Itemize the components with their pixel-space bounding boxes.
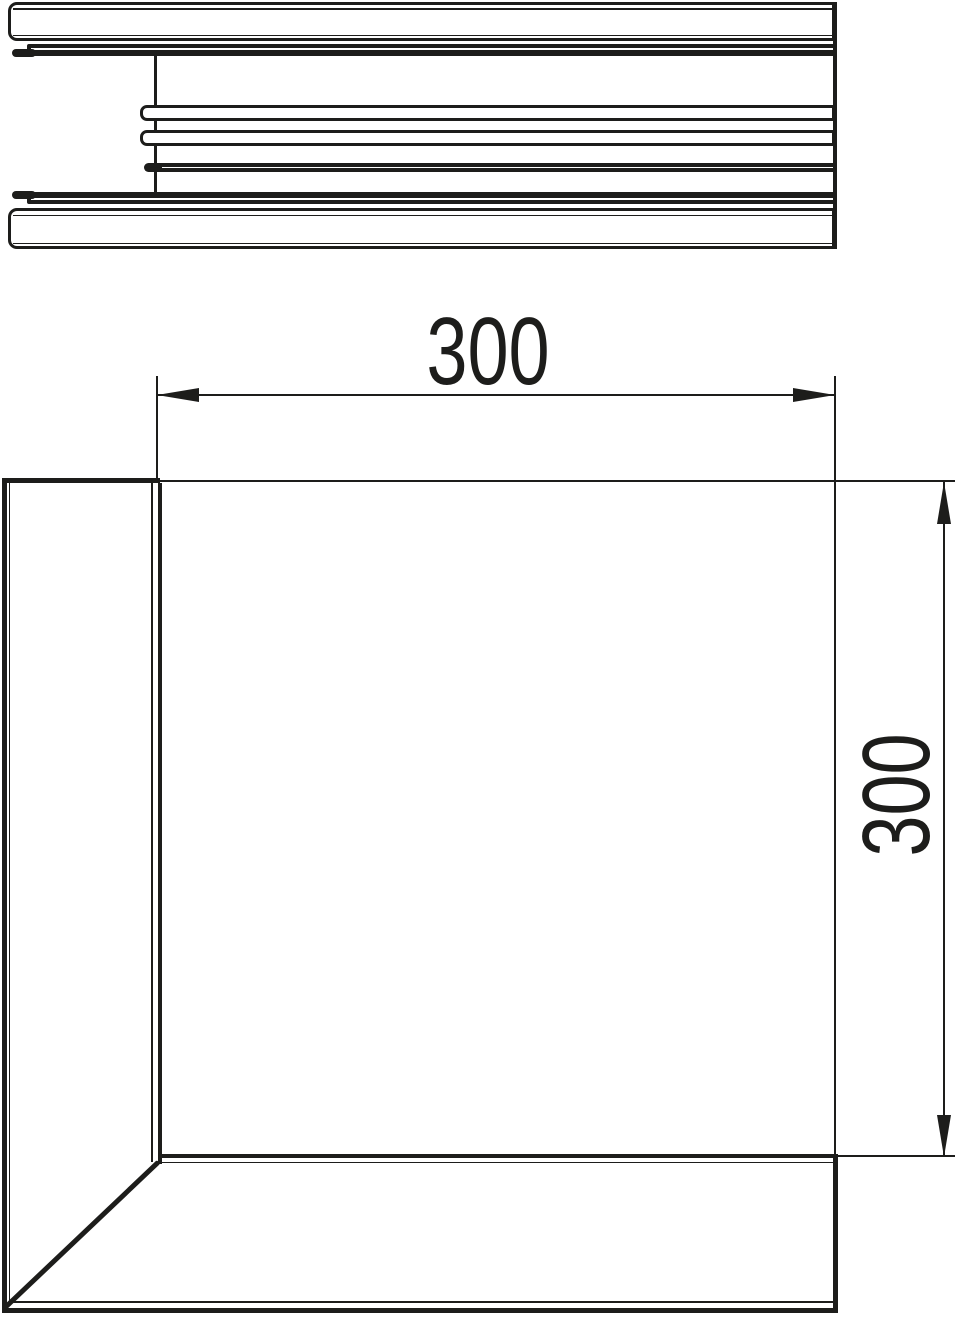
arrowhead-right-icon — [793, 388, 835, 402]
profile-lower-lip — [28, 200, 835, 204]
plan-top-edge-thick — [2, 478, 160, 483]
profile-end-face-line — [833, 2, 838, 249]
profile-wall-edge-line — [154, 55, 157, 195]
profile-rail — [140, 105, 835, 121]
profile-bottom-cover-inner-line — [13, 243, 833, 245]
plan-right-edge-thin — [834, 482, 836, 1158]
plan-inner-wall-vertical-thin — [151, 483, 153, 1162]
profile-rail — [140, 130, 835, 146]
profile-upper-lip — [28, 44, 835, 48]
profile-top-cover-inner-line — [13, 35, 833, 37]
profile-lower-lip — [13, 192, 835, 198]
technical-drawing: 300 300 — [0, 0, 960, 1317]
arrowhead-up-icon — [937, 482, 951, 524]
width-dimension-label: 300 — [426, 304, 549, 400]
profile-rail-core-line — [162, 167, 833, 169]
plan-bottom-inner-line — [9, 1301, 837, 1303]
height-dimension-label: 300 — [849, 733, 945, 856]
profile-bottom-cover-inner-line — [13, 215, 833, 217]
arrowhead-left-icon — [157, 388, 199, 402]
arrowhead-down-icon — [937, 1115, 951, 1157]
plan-right-edge-thick — [833, 1155, 838, 1313]
profile-top-cover-inner-line — [13, 8, 833, 10]
plan-bottom-edge — [2, 1308, 838, 1313]
plan-inner-wall-horizontal-thick — [158, 1154, 839, 1159]
plan-left-edge — [2, 478, 7, 1313]
plan-inner-wall-vertical-thick — [158, 483, 162, 1164]
profile-upper-lip — [13, 50, 835, 56]
miter-joint-line — [2, 1160, 160, 1310]
plan-inner-wall-horizontal-thin — [160, 1162, 836, 1164]
profile-lower-lip — [27, 196, 31, 204]
plan-left-inner-line — [9, 483, 11, 1303]
